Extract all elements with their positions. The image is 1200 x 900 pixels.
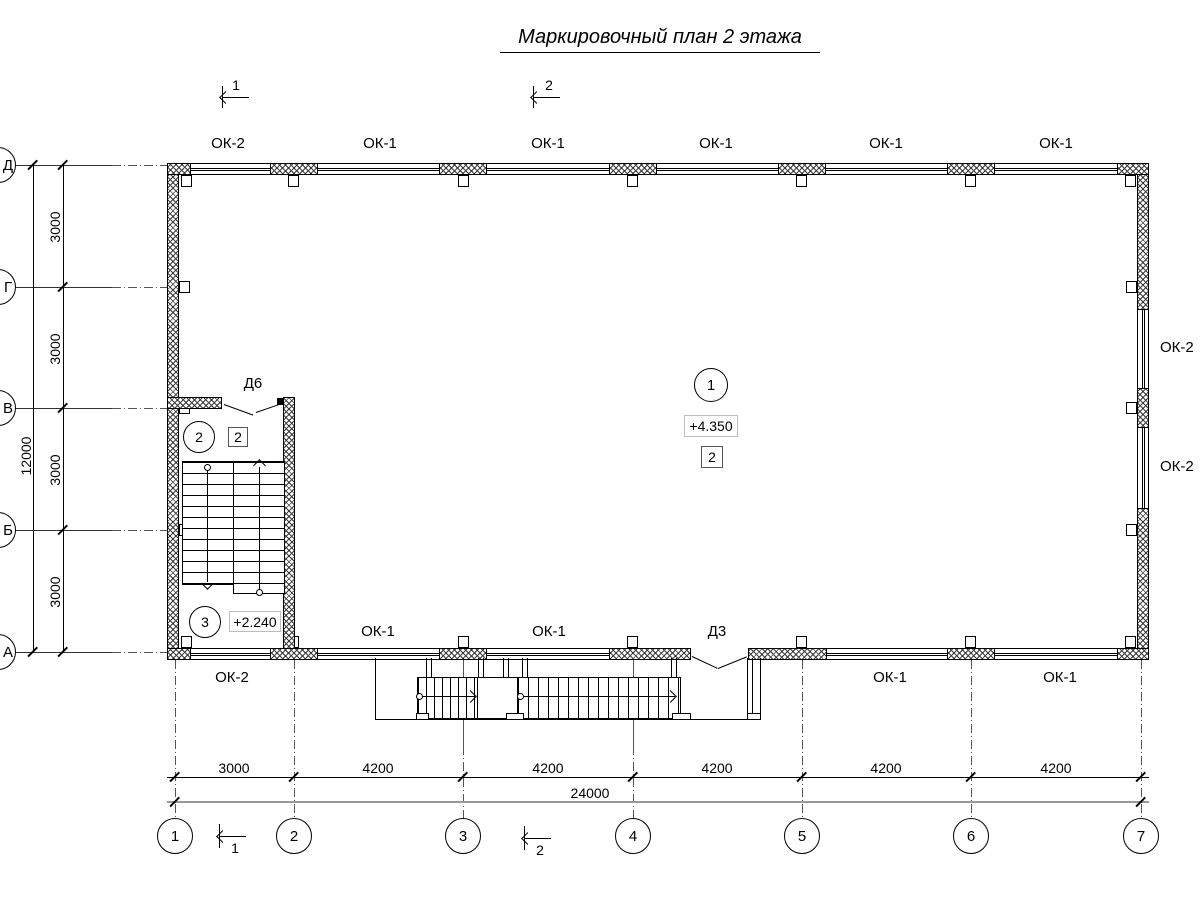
- window-bottom-2: [318, 648, 439, 660]
- door-d3-leaf: [692, 656, 718, 669]
- ext-stair-strut: [478, 658, 484, 677]
- grid-row-line: [112, 408, 167, 409]
- ext-stair-landing-wall: [747, 658, 753, 719]
- column-marker: [1126, 402, 1137, 414]
- dim-bottom-5: 4200: [856, 760, 916, 776]
- column-marker: [627, 636, 638, 648]
- ext-stair-foot: [506, 713, 524, 720]
- ext-stair-foot: [747, 713, 761, 720]
- window-label-bottom: ОК-1: [860, 669, 920, 686]
- wall-left: [167, 163, 179, 660]
- stair-centerline: [207, 464, 208, 582]
- section1-bottom-label: 1: [227, 840, 243, 856]
- window-top-4: [657, 163, 778, 175]
- window-right-2: [1137, 428, 1149, 508]
- stairwell-wall: [167, 397, 222, 409]
- dim-line-bottom-segments: [167, 777, 1149, 778]
- dim-left-3: 3000: [47, 440, 63, 500]
- wall-bottom-pier: [167, 648, 191, 660]
- axis-bubble-col: 2: [276, 818, 312, 854]
- column-marker: [181, 636, 192, 648]
- dim-bottom-1: 3000: [204, 760, 264, 776]
- window-top-3: [487, 163, 609, 175]
- grid-row-line: [112, 652, 167, 653]
- ext-stair-outline: [375, 658, 376, 720]
- grid-col-line: [1141, 660, 1142, 818]
- axis-bubble-col: 6: [953, 818, 989, 854]
- column-marker: [796, 175, 807, 187]
- dim-bottom-4: 4200: [687, 760, 747, 776]
- wall-top-pier: [270, 163, 318, 175]
- window-bottom-1: [191, 648, 270, 660]
- window-label-right: ОК-2: [1160, 458, 1200, 475]
- window-bottom-5: [995, 648, 1117, 660]
- drawing-title: Маркировочный план 2 этажа: [500, 26, 820, 53]
- grid-col-line: [633, 746, 634, 818]
- section2-bottom-label: 2: [532, 842, 548, 858]
- axis-row-label: А: [1, 644, 15, 661]
- grid-col-line: [463, 746, 464, 818]
- floor-plan-drawing: Маркировочный план 2 этажа 1 2 1 2 3000 …: [0, 0, 1200, 900]
- ext-stair-start-circle: [416, 693, 423, 700]
- room-1-number: 1: [694, 368, 728, 402]
- room-2-number: 2: [183, 421, 215, 453]
- column-marker: [288, 175, 299, 187]
- axis-row-label: Б: [1, 522, 15, 539]
- room-1-grade: 2: [701, 446, 723, 468]
- ext-stair-centerline: [520, 696, 675, 697]
- grid-row-line: [112, 530, 167, 531]
- wall-top-pier: [439, 163, 487, 175]
- axis-bubble-col: 5: [784, 818, 820, 854]
- window-top-2: [318, 163, 439, 175]
- room-2-grade: 2: [228, 427, 248, 447]
- ext-stair-strut: [426, 658, 432, 677]
- column-marker: [965, 175, 976, 187]
- section2-top-label: 2: [541, 77, 557, 93]
- section1-top-label: 1: [228, 77, 244, 93]
- ext-stair-foot: [672, 713, 691, 720]
- column-marker: [1126, 281, 1137, 293]
- dim-left-total: 12000: [18, 421, 34, 491]
- column-marker: [179, 281, 190, 293]
- wall-bottom-pier: [1117, 648, 1149, 660]
- window-label-top: ОК-1: [686, 135, 746, 152]
- door-d6-hinge: [277, 398, 284, 405]
- wall-top-pier: [778, 163, 826, 175]
- dim-line-left-segments: [63, 165, 64, 652]
- room-1-elevation: +4.350: [684, 415, 738, 437]
- window-label-bottom: ОК-1: [348, 623, 408, 640]
- door-d6-leaf: [224, 404, 253, 416]
- dim-left-2: 3000: [47, 319, 63, 379]
- wall-right-pier: [1137, 388, 1149, 428]
- column-marker: [965, 636, 976, 648]
- wall-bottom-pier: [270, 648, 318, 660]
- dim-bottom-2: 4200: [348, 760, 408, 776]
- window-label-right: ОК-2: [1160, 339, 1200, 356]
- window-right-1: [1137, 310, 1149, 388]
- axis-bubble-col: 3: [445, 818, 481, 854]
- axis-bubble-col: 7: [1123, 818, 1159, 854]
- axis-row-label: Д: [1, 157, 15, 174]
- ext-stair-flight-2: [518, 678, 680, 718]
- grid-col-line: [971, 660, 972, 818]
- wall-bottom-pier: [609, 648, 691, 660]
- grid-col-line: [802, 660, 803, 818]
- room-3-elevation: +2.240: [229, 611, 281, 632]
- axis-row-label: Г: [1, 279, 15, 296]
- wall-right-segment: [1137, 508, 1149, 660]
- wall-top-pier: [167, 163, 191, 175]
- window-label-top: ОК-1: [350, 135, 410, 152]
- ext-stair-start-circle: [517, 693, 524, 700]
- column-marker: [796, 636, 807, 648]
- wall-top-pier: [1117, 163, 1149, 175]
- window-label-bottom: ОК-2: [202, 669, 262, 686]
- column-marker: [627, 175, 638, 187]
- window-label-top: ОК-1: [1026, 135, 1086, 152]
- door-d6-label: Д6: [230, 375, 276, 392]
- stair-start-circle: [204, 464, 211, 471]
- stair-centerline: [259, 467, 260, 592]
- window-label-top: ОК-1: [518, 135, 578, 152]
- window-label-bottom: ОК-1: [519, 623, 579, 640]
- grid-row-line: [112, 165, 167, 166]
- dim-bottom-3: 4200: [518, 760, 578, 776]
- window-top-1: [191, 163, 270, 175]
- axis-bubble-col: 4: [615, 818, 651, 854]
- window-label-bottom: ОК-1: [1030, 669, 1090, 686]
- window-label-top: ОК-2: [198, 135, 258, 152]
- dim-left-4: 3000: [47, 562, 63, 622]
- wall-top-pier: [609, 163, 657, 175]
- dim-left-1: 3000: [47, 197, 63, 257]
- column-marker: [1125, 636, 1136, 648]
- window-bottom-4: [827, 648, 947, 660]
- wall-right-segment: [1137, 163, 1149, 310]
- wall-top-pier: [947, 163, 995, 175]
- window-top-5: [826, 163, 947, 175]
- axis-row-label: В: [1, 400, 15, 417]
- column-marker: [1126, 524, 1137, 536]
- column-marker: [181, 175, 192, 187]
- window-label-top: ОК-1: [856, 135, 916, 152]
- grid-col-line: [175, 660, 176, 818]
- ext-stair-strut: [671, 658, 677, 677]
- door-d3-label: Д3: [687, 623, 747, 640]
- ext-stair-foot: [416, 713, 429, 720]
- column-marker: [458, 175, 469, 187]
- axis-bubble-col: 1: [157, 818, 193, 854]
- dim-line-bottom-total: [167, 801, 1149, 803]
- ext-stair-strut: [522, 658, 528, 677]
- dim-bottom-6: 4200: [1026, 760, 1086, 776]
- dim-bottom-total: 24000: [560, 785, 620, 801]
- grid-row-line: [112, 287, 167, 288]
- ext-stair-outline: [375, 719, 761, 720]
- room-3-number: 3: [189, 606, 221, 638]
- window-top-6: [995, 163, 1117, 175]
- dim-line-left-total: [33, 165, 34, 652]
- column-marker: [458, 636, 469, 648]
- ext-stair-landing-edge: [477, 677, 478, 719]
- ext-stair-outline: [760, 658, 761, 720]
- ext-stair-strut: [503, 658, 509, 677]
- column-marker: [1125, 175, 1136, 187]
- door-d3-leaf: [718, 656, 747, 669]
- stair-start-circle: [256, 589, 263, 596]
- grid-col-line: [294, 660, 295, 818]
- wall-bottom-pier: [947, 648, 995, 660]
- stair-flight-down: [182, 461, 234, 585]
